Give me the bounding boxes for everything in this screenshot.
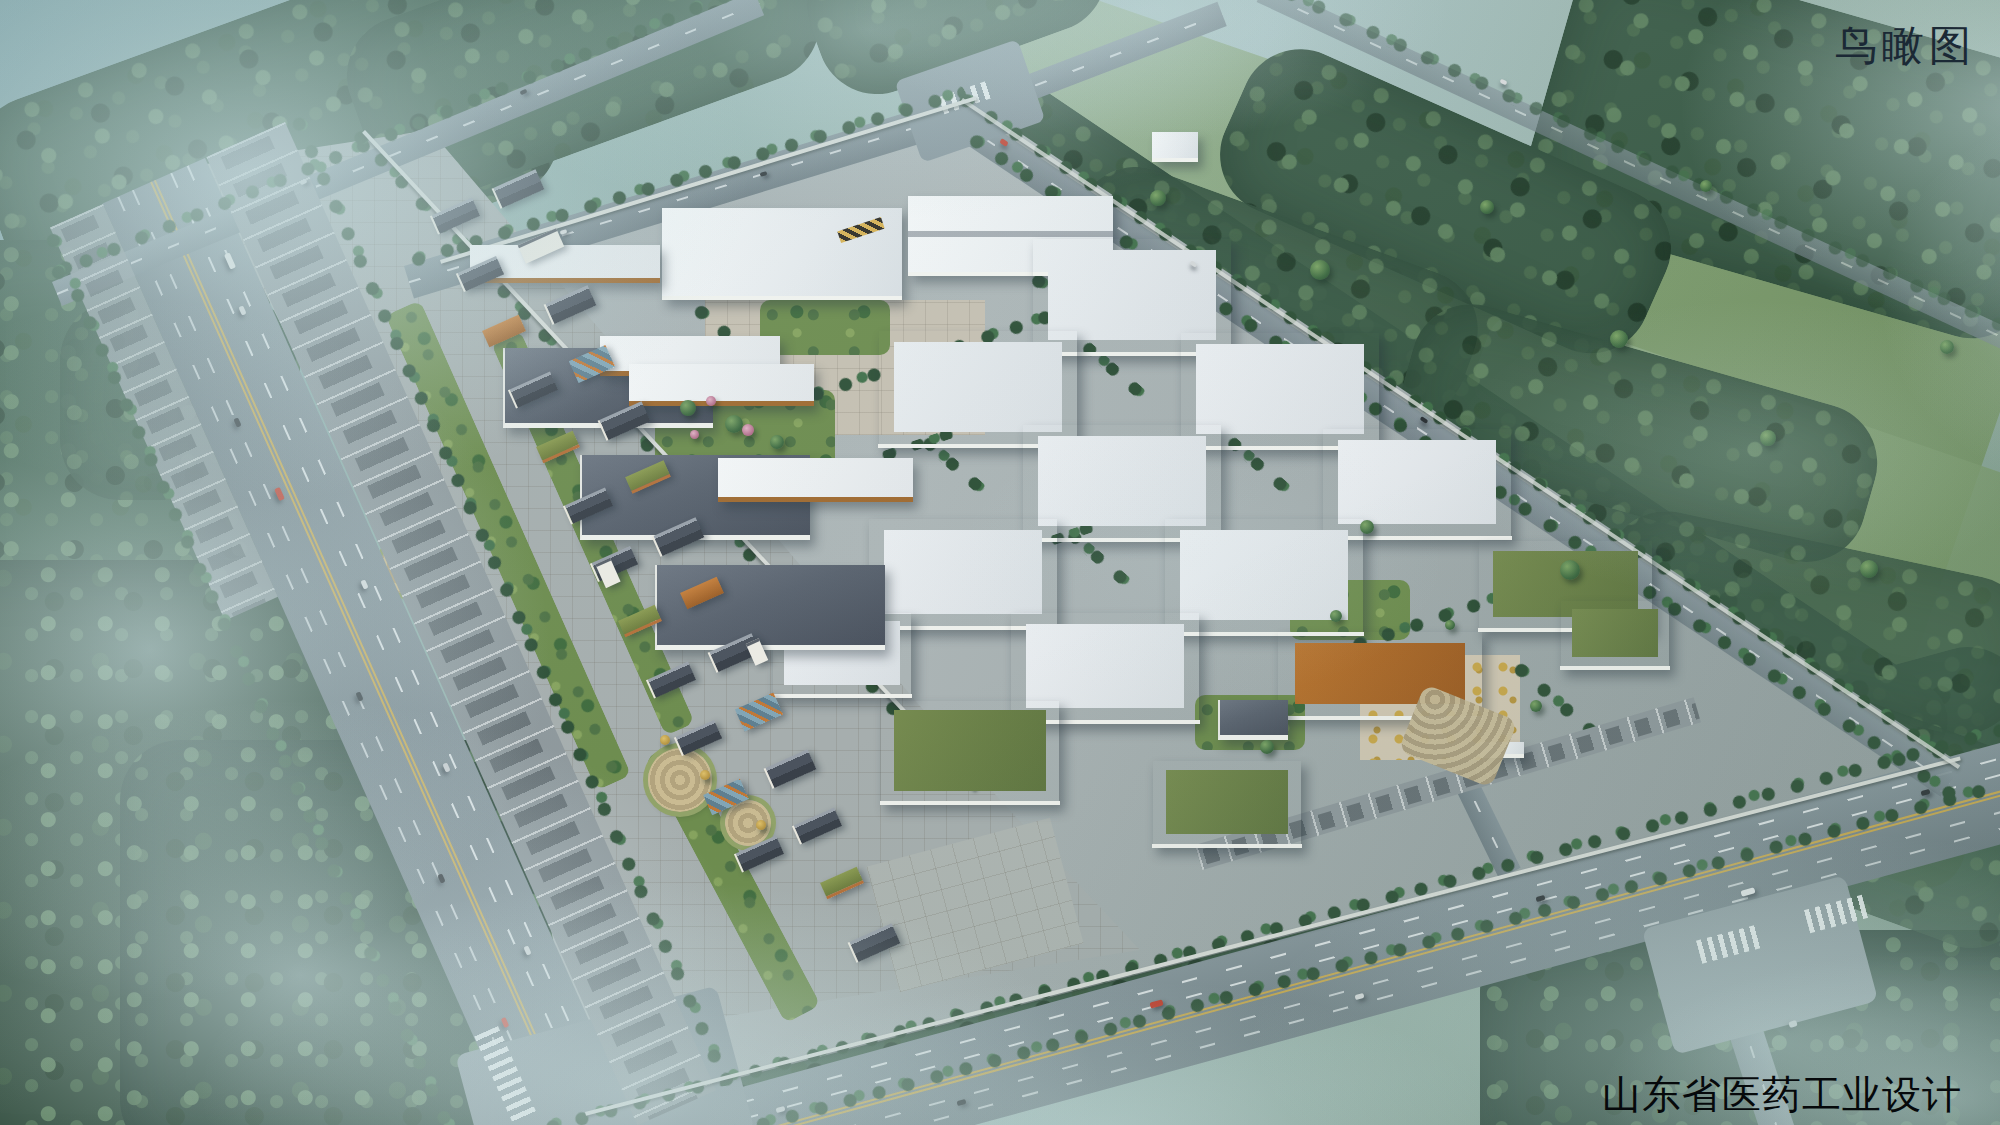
tree bbox=[1760, 430, 1776, 446]
slat-building-3 bbox=[629, 364, 814, 406]
courtyard-workshop-green bbox=[880, 700, 1060, 805]
aerial-rendering-canvas: 鸟瞰图 山东省医药工业设计院 bbox=[0, 0, 2000, 1125]
tree bbox=[1330, 610, 1342, 622]
slat-building-4 bbox=[718, 458, 913, 502]
tree bbox=[1940, 340, 1954, 354]
gatehouse bbox=[1152, 132, 1198, 162]
tree bbox=[1260, 740, 1274, 754]
tree-yellow bbox=[700, 770, 710, 780]
office-wing bbox=[1218, 700, 1288, 740]
round-plaza-2 bbox=[648, 748, 712, 812]
tree bbox=[1480, 200, 1494, 214]
tree bbox=[770, 435, 784, 449]
office-courtyard-sw bbox=[1152, 760, 1302, 848]
tree bbox=[1310, 260, 1330, 280]
tree bbox=[1150, 190, 1166, 206]
tree bbox=[680, 400, 696, 416]
tree-pink bbox=[706, 396, 716, 406]
tree bbox=[1360, 520, 1374, 534]
office-courtyard-e bbox=[1560, 600, 1670, 670]
tree bbox=[1700, 180, 1712, 192]
tree bbox=[1560, 560, 1580, 580]
tree-yellow bbox=[660, 735, 670, 745]
tree bbox=[1530, 700, 1542, 712]
page-title: 鸟瞰图 bbox=[1835, 18, 1976, 74]
design-institute-credit: 山东省医药工业设计院 bbox=[1602, 1068, 2000, 1125]
tree bbox=[1445, 620, 1455, 630]
tree-pink bbox=[742, 424, 754, 436]
tree bbox=[1860, 560, 1878, 578]
tree bbox=[1610, 330, 1628, 348]
tree-yellow bbox=[756, 820, 766, 830]
tree bbox=[725, 415, 743, 433]
tree-pink bbox=[690, 430, 699, 439]
